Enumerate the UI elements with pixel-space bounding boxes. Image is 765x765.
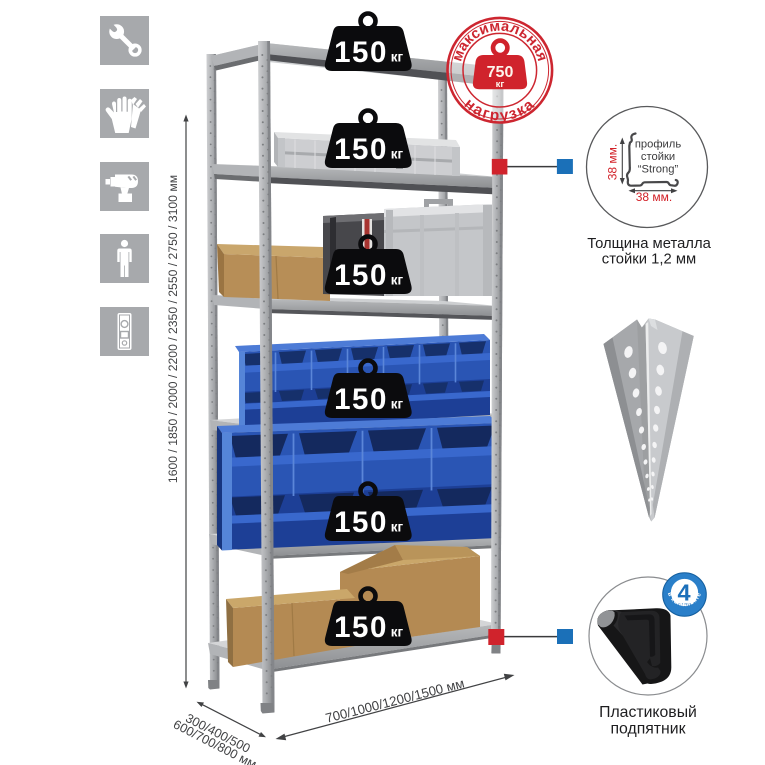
svg-text:38 мм.: 38 мм.	[636, 190, 673, 204]
svg-text:Пластиковый: Пластиковый	[599, 704, 697, 721]
svg-text:38 мм.: 38 мм.	[606, 144, 620, 181]
svg-text:профиль: профиль	[635, 139, 681, 151]
svg-text:стойки: стойки	[641, 151, 675, 163]
svg-text:кг: кг	[496, 79, 505, 90]
svg-text:стойки 1,2 мм: стойки 1,2 мм	[602, 252, 696, 268]
svg-text:1600 / 1850 / 2000 / 2200 / 23: 1600 / 1850 / 2000 / 2200 / 2350 / 2550 …	[166, 175, 180, 483]
svg-text:“Strong”: “Strong”	[638, 164, 679, 176]
svg-text:подпятник: подпятник	[610, 721, 685, 738]
svg-text:Толщина металла: Толщина металла	[587, 236, 711, 252]
